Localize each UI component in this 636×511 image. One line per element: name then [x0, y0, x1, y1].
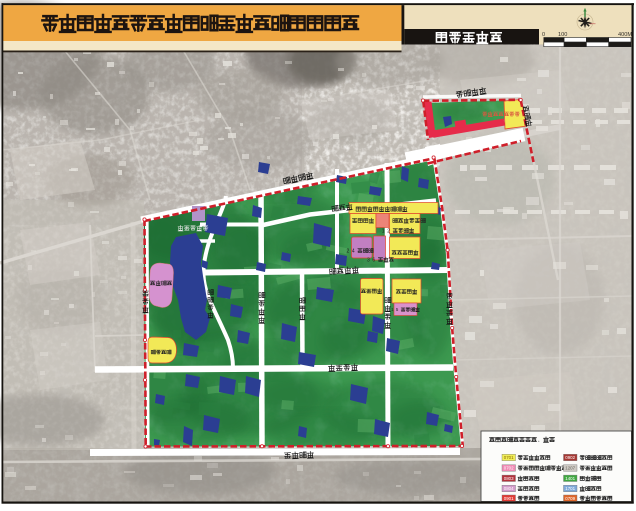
svg-text:0804: 0804 [504, 486, 514, 491]
svg-text:6: 6 [372, 257, 375, 263]
svg-text:4: 4 [352, 248, 355, 254]
svg-text:0803: 0803 [504, 476, 514, 481]
svg-text:0702: 0702 [504, 466, 514, 471]
svg-text:2: 2 [387, 228, 390, 234]
svg-text:3: 3 [367, 257, 370, 263]
svg-text:1207: 1207 [565, 466, 575, 471]
svg-text:0701: 0701 [504, 455, 514, 460]
svg-text:1701: 1701 [565, 486, 575, 491]
svg-text:0902: 0902 [565, 455, 575, 460]
svg-text:1: 1 [382, 228, 385, 234]
svg-text:1401: 1401 [565, 476, 575, 481]
svg-text:0709: 0709 [565, 496, 575, 501]
svg-text:0: 0 [542, 32, 545, 38]
svg-text:400M: 400M [618, 32, 632, 38]
svg-text:0901: 0901 [504, 496, 514, 501]
svg-text:2: 2 [347, 248, 350, 254]
svg-text:100: 100 [558, 32, 567, 38]
